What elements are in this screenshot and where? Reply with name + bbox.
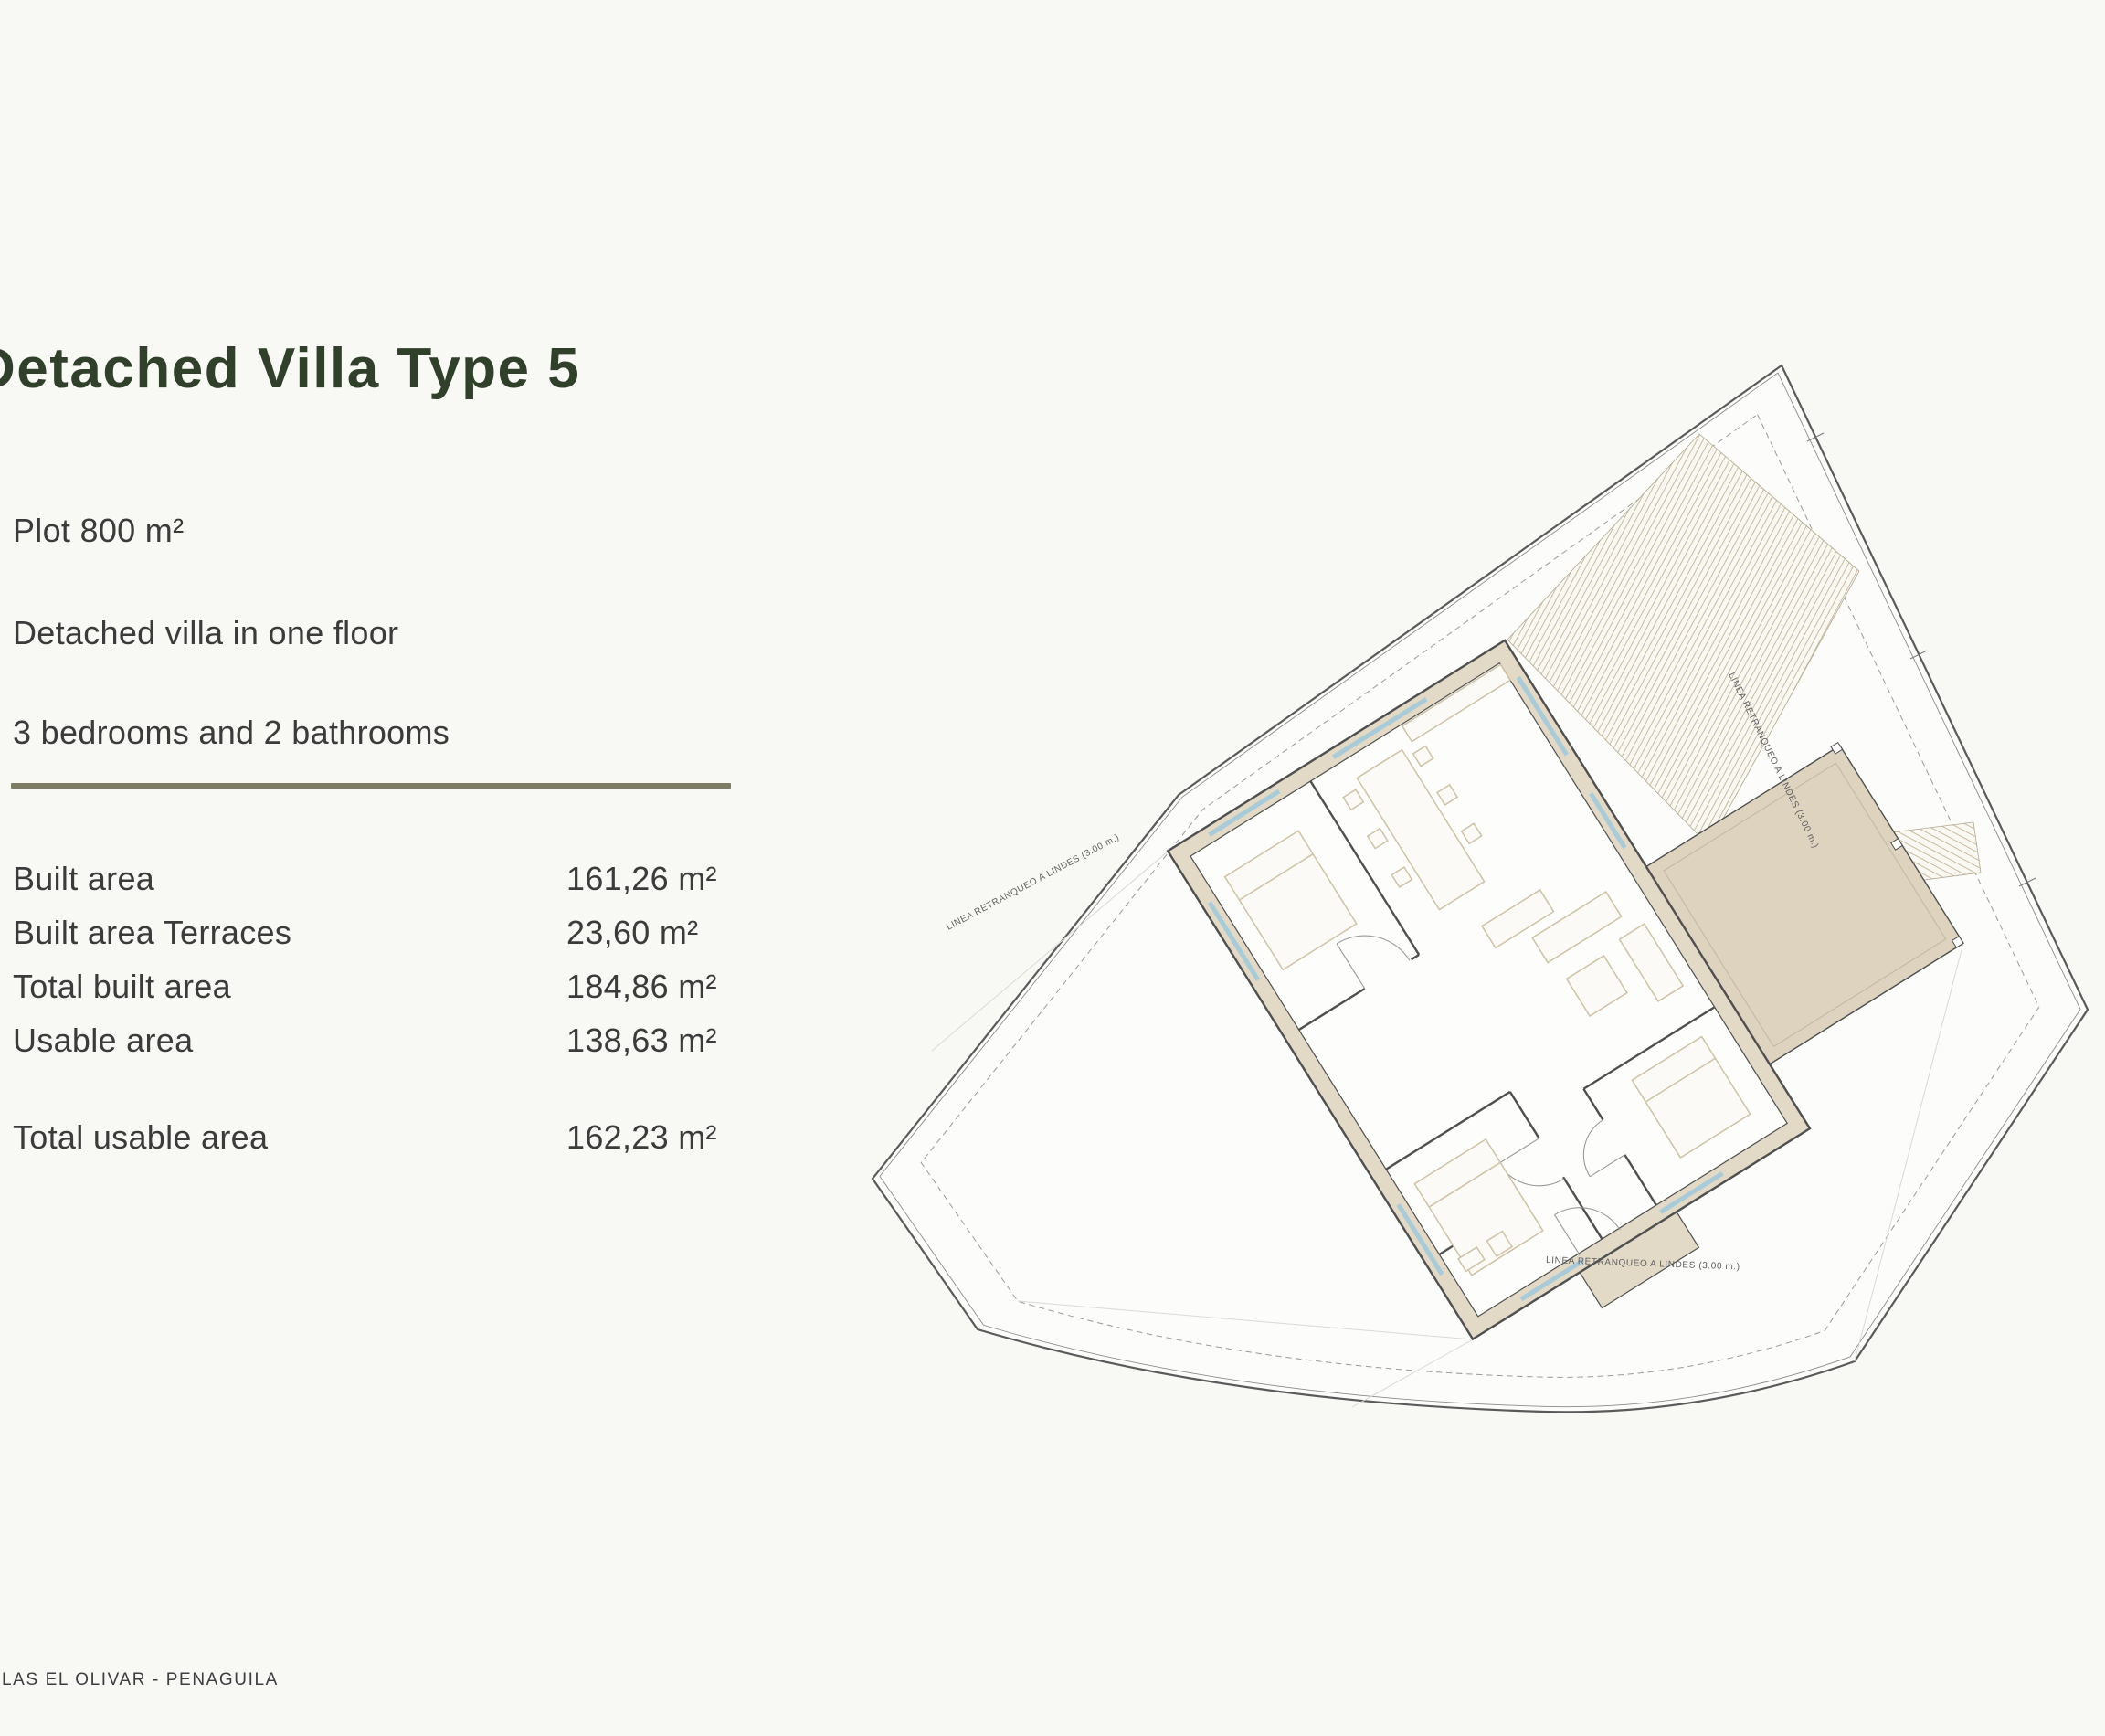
site-plan-drawing: LINEA RETRANQUEO A LINDES (3.00 m.) LINE… — [786, 338, 2105, 1444]
area-row-value: 184,86 m² — [566, 968, 717, 1006]
footer-project-name: LAS EL OLIVAR - PENAGUILA — [2, 1670, 279, 1690]
spec-floors: Detached villa in one floor — [13, 614, 398, 652]
area-row-label: Built area — [13, 860, 154, 898]
area-row-label: Built area Terraces — [13, 914, 291, 952]
area-row-label: Usable area — [13, 1021, 193, 1060]
area-total-label: Total usable area — [13, 1118, 268, 1157]
accent-divider — [11, 783, 731, 789]
spec-plot-size: Plot 800 m² — [13, 512, 184, 550]
area-row-value: 23,60 m² — [566, 914, 698, 952]
site-plan: LINEA RETRANQUEO A LINDES (3.00 m.) LINE… — [786, 338, 2105, 1444]
area-total-value: 162,23 m² — [566, 1118, 717, 1157]
spec-rooms: 3 bedrooms and 2 bathrooms — [13, 714, 450, 752]
area-row-value: 138,63 m² — [566, 1021, 717, 1060]
area-row-value: 161,26 m² — [566, 860, 717, 898]
page-title: Detached Villa Type 5 — [0, 336, 580, 401]
brochure-page: Detached Villa Type 5 Plot 800 m² Detach… — [0, 0, 2105, 1736]
area-row-label: Total built area — [13, 968, 231, 1006]
